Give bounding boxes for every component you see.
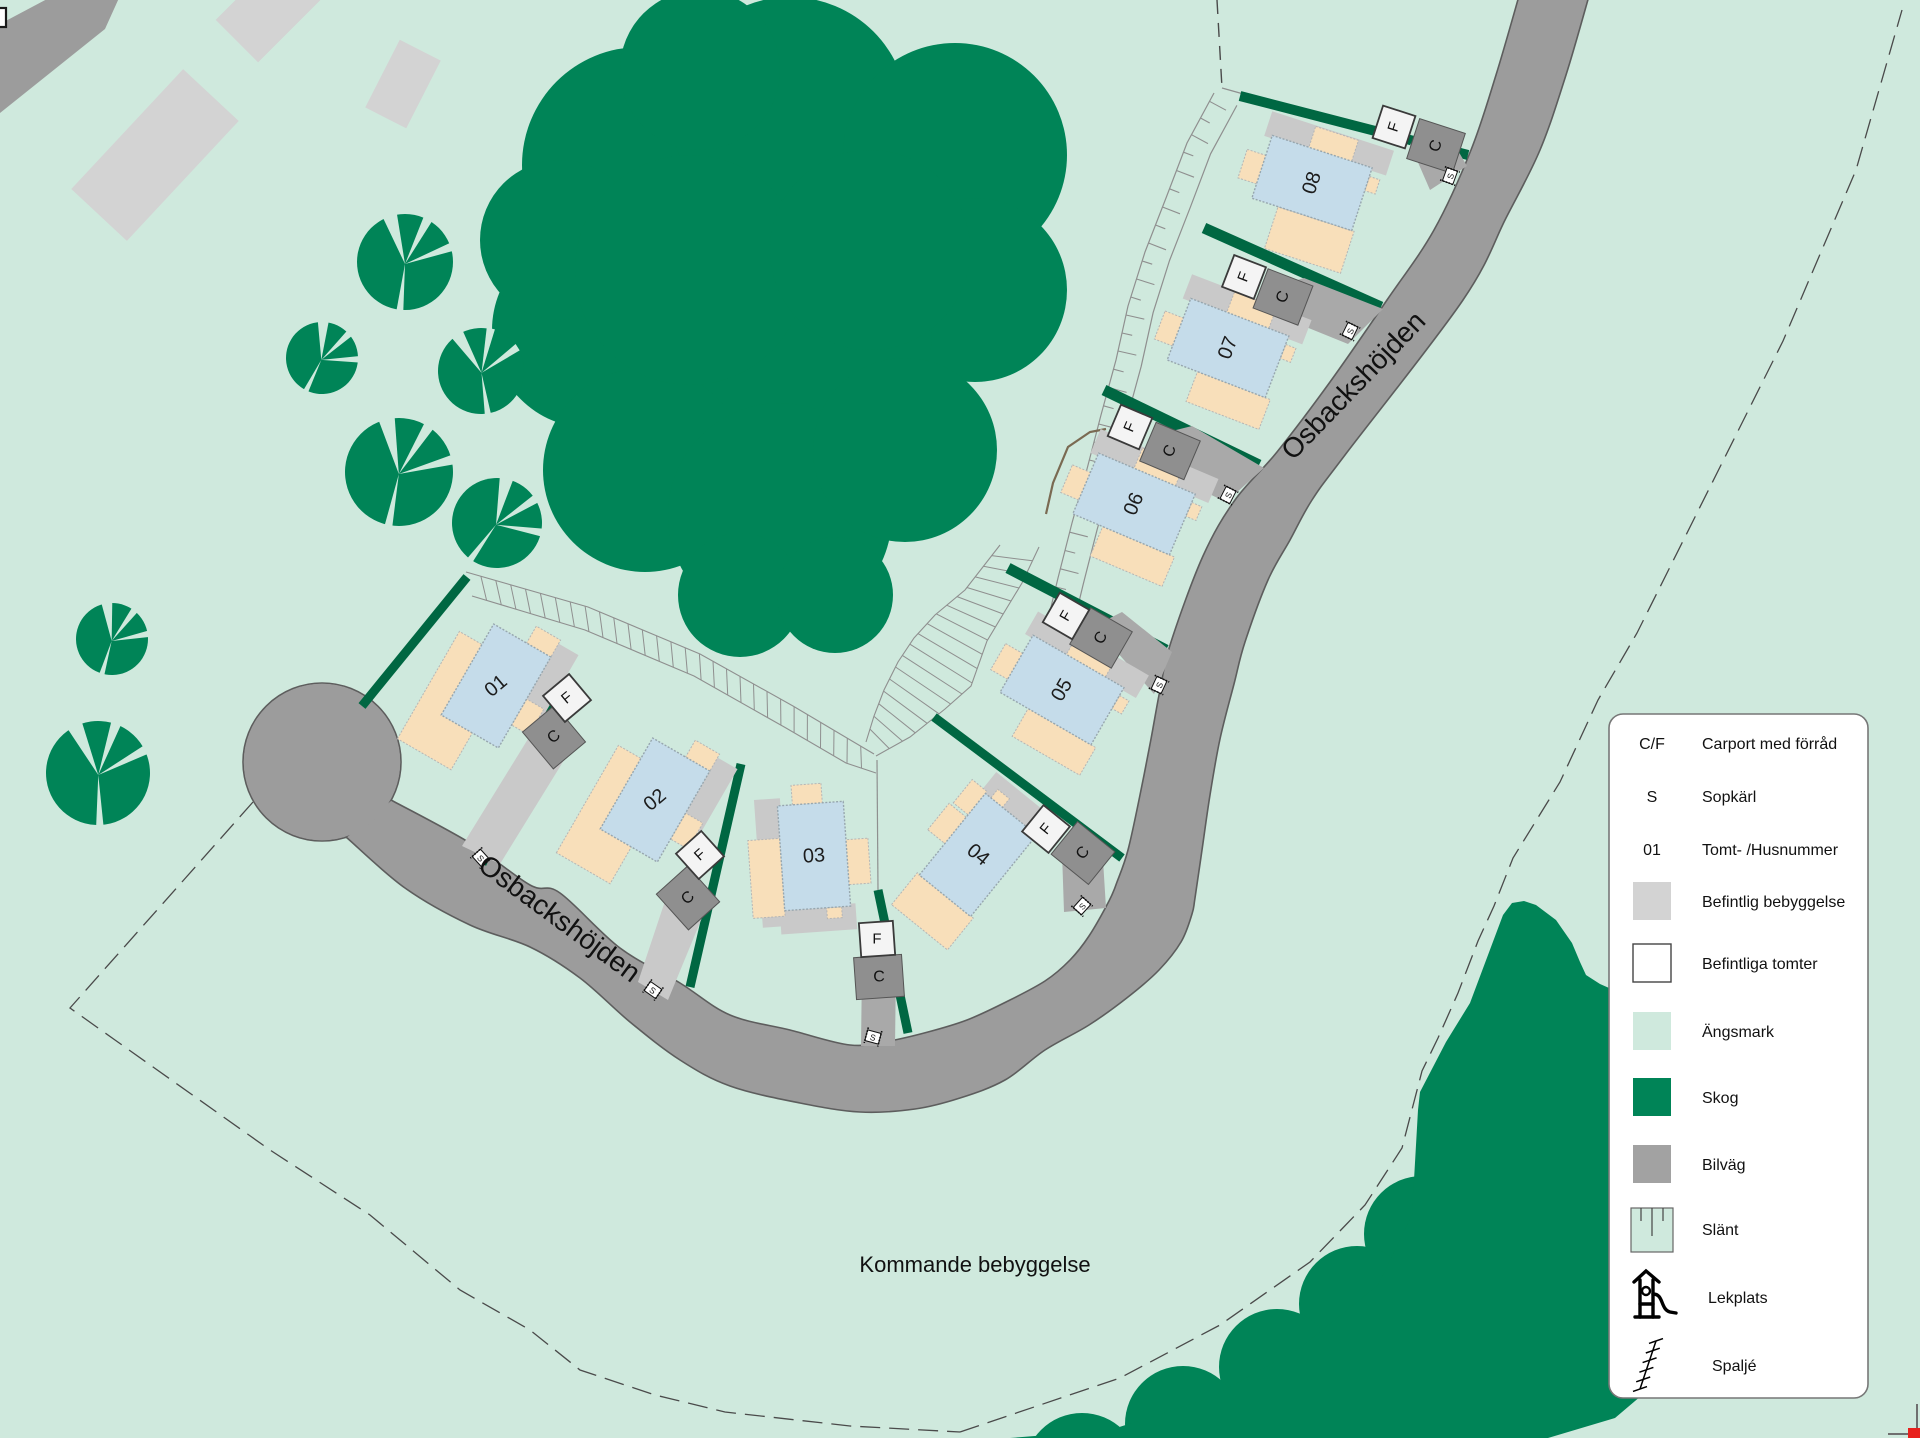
svg-text:03: 03	[802, 844, 826, 867]
svg-text:Befintlig bebyggelse: Befintlig bebyggelse	[1702, 894, 1845, 911]
svg-text:Lekplats: Lekplats	[1708, 1290, 1768, 1307]
svg-text:Bilväg: Bilväg	[1702, 1157, 1746, 1174]
svg-text:Befintliga tomter: Befintliga tomter	[1702, 956, 1818, 973]
svg-text:Carport med förråd: Carport med förråd	[1702, 735, 1837, 753]
svg-text:C/F: C/F	[1639, 736, 1665, 753]
svg-text:Ängsmark: Ängsmark	[1702, 1023, 1775, 1041]
svg-text:F: F	[872, 931, 881, 948]
svg-text:Slänt: Slänt	[1702, 1222, 1739, 1239]
svg-text:Kommande bebyggelse: Kommande bebyggelse	[859, 1252, 1090, 1277]
svg-text:Skog: Skog	[1702, 1090, 1738, 1107]
svg-text:C: C	[873, 969, 885, 986]
svg-text:Sopkärl: Sopkärl	[1702, 789, 1756, 806]
svg-text:S: S	[1647, 789, 1658, 806]
svg-text:Tomt- /Husnummer: Tomt- /Husnummer	[1702, 842, 1839, 859]
svg-text:01: 01	[1643, 842, 1661, 859]
svg-text:Spaljé: Spaljé	[1712, 1358, 1757, 1375]
